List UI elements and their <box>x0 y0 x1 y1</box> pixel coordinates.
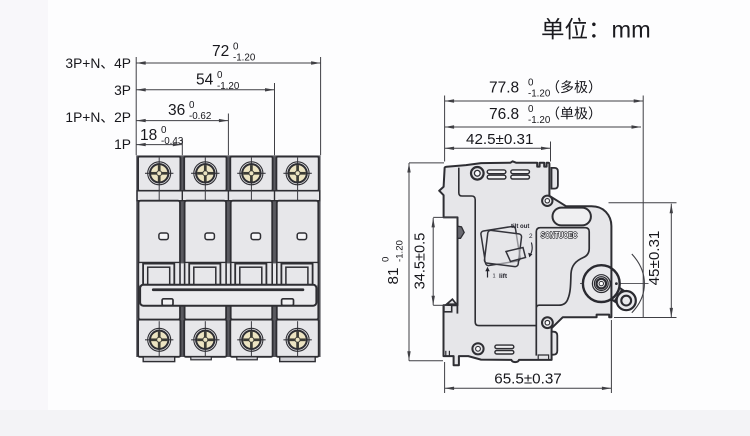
svg-text:54: 54 <box>196 72 214 89</box>
svg-text:3P: 3P <box>114 83 131 98</box>
svg-text:0: 0 <box>528 78 534 89</box>
svg-text:4P: 4P <box>114 56 131 71</box>
svg-text:mm: mm <box>612 17 651 43</box>
svg-text:81: 81 <box>385 268 402 285</box>
svg-text:0: 0 <box>217 70 223 81</box>
svg-text:42.5±0.31: 42.5±0.31 <box>466 131 533 148</box>
svg-text:3P+N: 3P+N <box>65 56 100 71</box>
svg-text:65.5±0.37: 65.5±0.37 <box>494 370 561 387</box>
svg-text:72: 72 <box>212 43 229 60</box>
svg-text:0: 0 <box>528 104 534 115</box>
svg-text:0: 0 <box>189 100 195 111</box>
svg-text:45±0.31: 45±0.31 <box>646 231 663 286</box>
svg-text:-0.43: -0.43 <box>161 136 184 147</box>
svg-text:1P+N: 1P+N <box>65 110 100 125</box>
svg-text:18: 18 <box>140 127 157 144</box>
svg-text:-0.62: -0.62 <box>189 111 211 122</box>
svg-text:0: 0 <box>161 125 167 136</box>
svg-text:-1.20: -1.20 <box>217 81 240 92</box>
svg-text:2P: 2P <box>114 110 131 125</box>
svg-text:76.8: 76.8 <box>489 106 519 123</box>
svg-text:lift: lift <box>499 273 508 280</box>
svg-text:SONTUOEC: SONTUOEC <box>541 231 578 240</box>
svg-text:1P: 1P <box>114 137 131 152</box>
svg-text:0: 0 <box>233 41 239 52</box>
svg-text:2: 2 <box>529 233 533 240</box>
svg-text:-1.20: -1.20 <box>528 89 551 100</box>
svg-text:-1.20: -1.20 <box>233 52 256 63</box>
svg-text:77.8: 77.8 <box>489 80 519 97</box>
svg-text:36: 36 <box>168 102 185 119</box>
svg-text:tilt out: tilt out <box>511 224 529 230</box>
svg-text:1: 1 <box>493 274 496 280</box>
svg-text:34.5±0.5: 34.5±0.5 <box>413 233 429 290</box>
svg-text:-1.20: -1.20 <box>528 115 551 126</box>
